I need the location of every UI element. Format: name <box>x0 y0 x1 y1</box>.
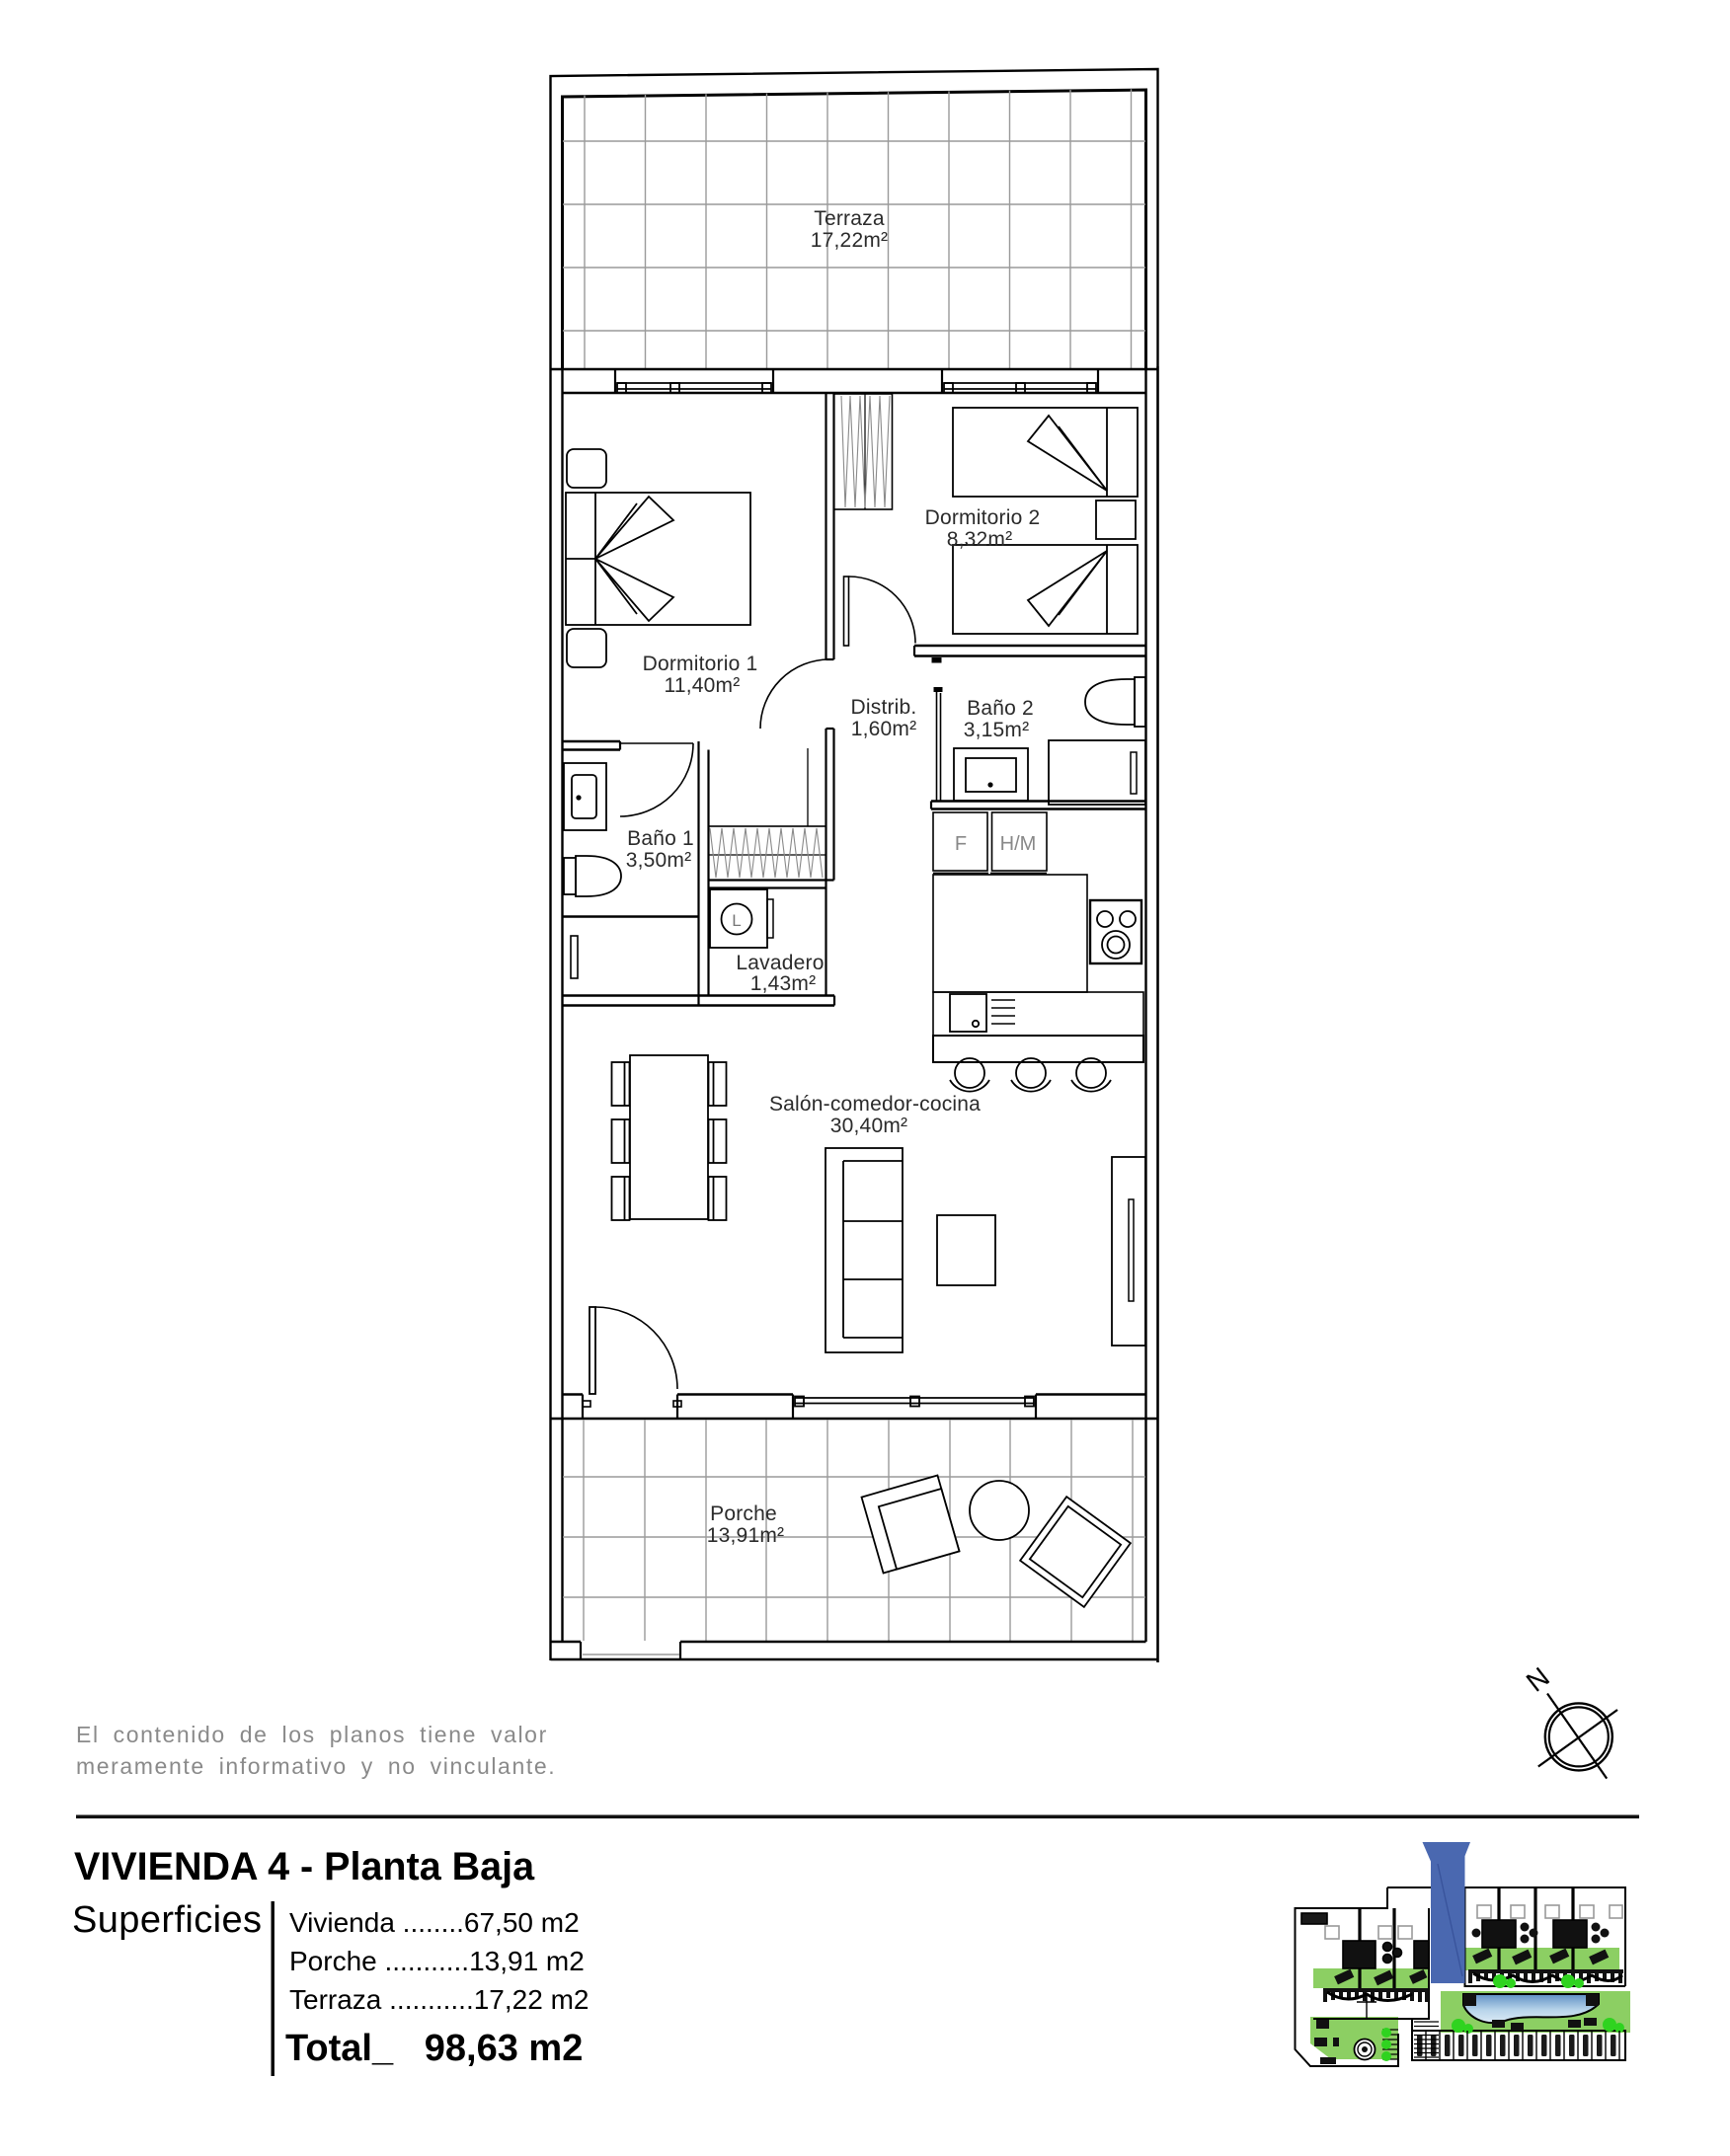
svg-text:Porche ...........13,91 m2: Porche ...........13,91 m2 <box>289 1946 585 1976</box>
svg-text:11,40m²: 11,40m² <box>665 674 741 697</box>
svg-text:Porche: Porche <box>710 1502 777 1525</box>
svg-text:Baño 2: Baño 2 <box>967 697 1034 720</box>
svg-text:Total_ 98,63 m2: Total_ 98,63 m2 <box>285 2028 583 2069</box>
svg-text:H/M: H/M <box>1000 833 1037 855</box>
svg-text:Distrib.: Distrib. <box>851 696 917 719</box>
svg-text:Lavadero: Lavadero <box>736 952 824 974</box>
svg-text:1,43m²: 1,43m² <box>750 972 817 995</box>
svg-text:1,60m²: 1,60m² <box>851 718 917 740</box>
svg-text:Dormitorio 2: Dormitorio 2 <box>925 506 1041 529</box>
svg-text:17,22m²: 17,22m² <box>811 229 888 252</box>
svg-text:Vivienda ........67,50 m2: Vivienda ........67,50 m2 <box>289 1907 580 1938</box>
svg-text:Superficies: Superficies <box>72 1899 262 1941</box>
svg-text:3,15m²: 3,15m² <box>964 719 1030 741</box>
svg-text:N: N <box>1521 1661 1555 1698</box>
svg-text:8,32m²: 8,32m² <box>947 528 1013 551</box>
svg-text:Salón-comedor-cocina: Salón-comedor-cocina <box>769 1093 981 1116</box>
svg-text:VIVIENDA 4 - Planta Baja: VIVIENDA 4 - Planta Baja <box>74 1845 535 1888</box>
svg-text:L: L <box>732 911 741 930</box>
svg-text:13,91m²: 13,91m² <box>707 1524 784 1547</box>
svg-text:Baño 1: Baño 1 <box>627 827 694 850</box>
svg-text:Terraza: Terraza <box>814 207 885 230</box>
svg-text:3,50m²: 3,50m² <box>626 849 692 872</box>
svg-text:Dormitorio 1: Dormitorio 1 <box>643 653 758 675</box>
svg-text:El contenido de los planos tie: El contenido de los planos tiene valor <box>76 1722 548 1747</box>
svg-text:30,40m²: 30,40m² <box>830 1115 907 1137</box>
svg-text:Terraza ...........17,22 m2: Terraza ...........17,22 m2 <box>289 1984 589 2015</box>
svg-text:F: F <box>955 833 967 855</box>
svg-text:meramente informativo y no vin: meramente informativo y no vinculante. <box>76 1753 556 1779</box>
